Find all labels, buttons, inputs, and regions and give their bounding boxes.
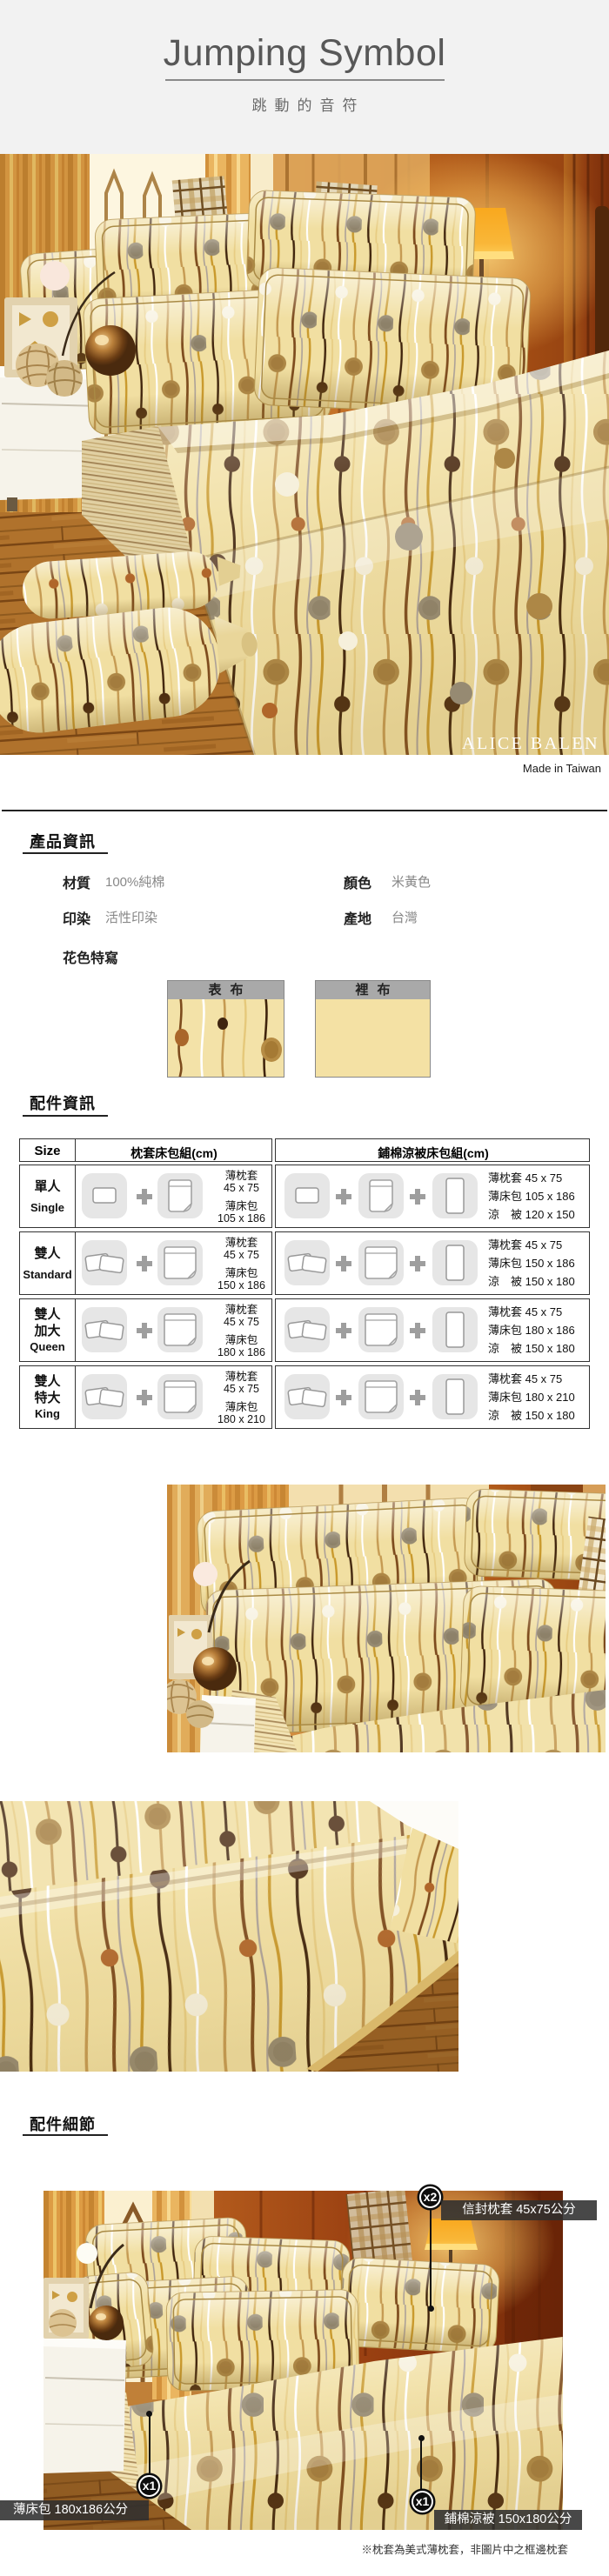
svg-text:ALICE BALEN: ALICE BALEN [462, 734, 599, 753]
